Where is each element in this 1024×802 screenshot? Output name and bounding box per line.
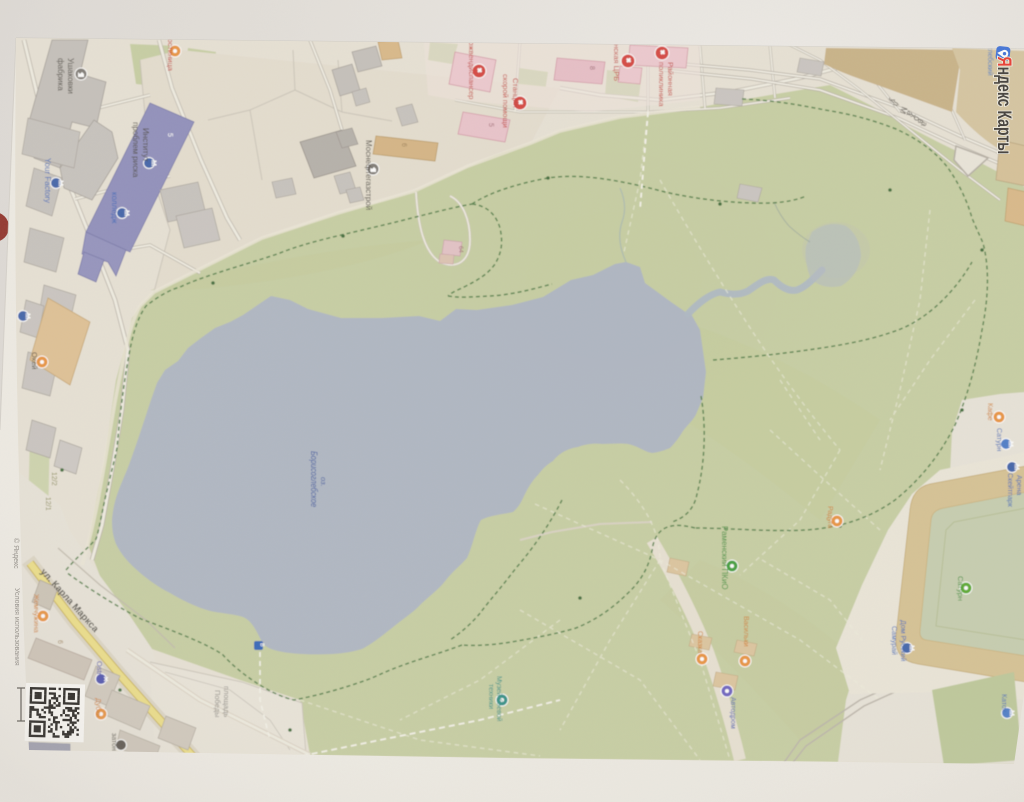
svg-text:Самурай: Самурай: [890, 626, 898, 655]
svg-text:Арена: Арена: [1015, 475, 1022, 495]
svg-text:скорой помощи: скорой помощи: [501, 74, 510, 128]
svg-text:Сатурн: Сатурн: [995, 428, 1002, 451]
svg-text:Яндекс Карты: Яндекс Карты: [993, 57, 1015, 155]
svg-text:M: M: [1007, 441, 1014, 447]
svg-text:Окей: Окей: [30, 352, 39, 370]
svg-text:Дубки: Дубки: [94, 698, 102, 718]
svg-text:Районная: Районная: [666, 62, 675, 96]
svg-text:Музей боевой: Музей боевой: [495, 676, 503, 722]
svg-text:M: M: [24, 313, 31, 319]
svg-text:M: M: [123, 210, 130, 216]
svg-text:6: 6: [400, 143, 407, 147]
svg-text:Институт: Институт: [141, 128, 150, 162]
svg-text:5: 5: [166, 133, 173, 137]
svg-text:8: 8: [588, 66, 595, 70]
svg-text:фабрика: фабрика: [56, 58, 65, 91]
svg-text:гостиница: гостиница: [166, 36, 175, 72]
svg-text:Кафе: Кафе: [986, 403, 993, 421]
svg-text:оз.: оз.: [319, 477, 328, 487]
svg-text:глебский: глебский: [986, 47, 994, 76]
svg-text:Сказка: Сказка: [696, 631, 703, 654]
svg-text:12/1: 12/1: [44, 497, 51, 511]
svg-text:Сатурн: Сатурн: [956, 576, 965, 601]
svg-text:Борисоглебское: Борисоглебское: [309, 451, 319, 508]
svg-text:колледж: колледж: [110, 192, 119, 224]
svg-text:Победы: Победы: [213, 690, 222, 718]
svg-text:Радуга: Радуга: [826, 506, 833, 528]
svg-text:проблем риска: проблем риска: [131, 122, 140, 178]
svg-text:Ушаковки: Ушаковки: [66, 58, 75, 94]
svg-text:M: M: [908, 645, 915, 651]
svg-text:нская ЦРБ: нская ЦРБ: [612, 44, 621, 81]
svg-text:5: 5: [487, 123, 494, 127]
svg-text:12/2: 12/2: [50, 472, 57, 486]
svg-text:Каток: Каток: [1000, 694, 1007, 713]
svg-text:поликлиника: поликлиника: [657, 62, 666, 107]
svg-text:площадь: площадь: [222, 686, 231, 717]
svg-text:M: M: [1013, 464, 1020, 470]
svg-text:Скейтпарк: Скейтпарк: [1006, 473, 1014, 508]
svg-text:затон: затон: [110, 733, 117, 751]
svg-text:Раменский ПКиО: Раменский ПКиО: [720, 526, 729, 590]
svg-text:Дом Русский: Дом Русский: [899, 620, 907, 662]
svg-text:в: в: [259, 643, 266, 647]
svg-text:M: M: [1008, 710, 1015, 716]
svg-text:Ostrov: Ostrov: [95, 661, 104, 683]
svg-text:кожвендиспансер: кожвендиспансер: [467, 38, 476, 99]
svg-text:Станция: Станция: [511, 78, 520, 108]
svg-text:6: 6: [56, 640, 63, 644]
svg-text:M: M: [57, 180, 64, 186]
svg-text:64: 64: [457, 246, 463, 253]
svg-text:Автодром: Автодром: [729, 697, 736, 729]
svg-text:Васильки: Васильки: [742, 616, 749, 647]
svg-text:техники: техники: [487, 684, 494, 709]
svg-text:© Яндекс: © Яндекс: [12, 538, 20, 569]
svg-text:Условия использования: Условия использования: [13, 588, 20, 666]
svg-text:Жемчужина: Жемчужина: [32, 594, 39, 633]
svg-text:Your Factory: Your Factory: [43, 158, 52, 203]
svg-text:Моснефтегазстрой: Моснефтегазстрой: [364, 140, 373, 210]
